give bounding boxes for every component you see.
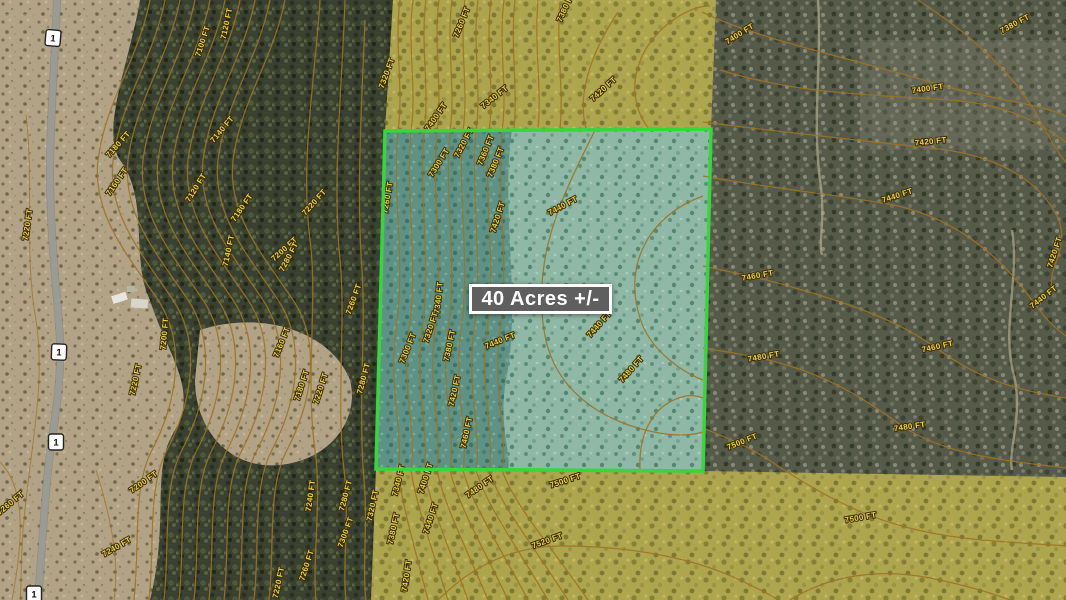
- svg-text:1: 1: [31, 590, 37, 600]
- acreage-label: 40 Acres +/-: [469, 284, 612, 314]
- highway-shield: 1: [27, 586, 42, 600]
- highway-shield: 1: [51, 344, 67, 361]
- svg-text:1: 1: [53, 438, 59, 449]
- light-clearing-patch: [860, 40, 1066, 150]
- highway-shield: 1: [49, 434, 64, 450]
- highway-shield: 1: [45, 29, 61, 46]
- map-canvas[interactable]: 7220 FT7260 FT7240 FT7200 FT7200 FT7220 …: [0, 0, 1066, 600]
